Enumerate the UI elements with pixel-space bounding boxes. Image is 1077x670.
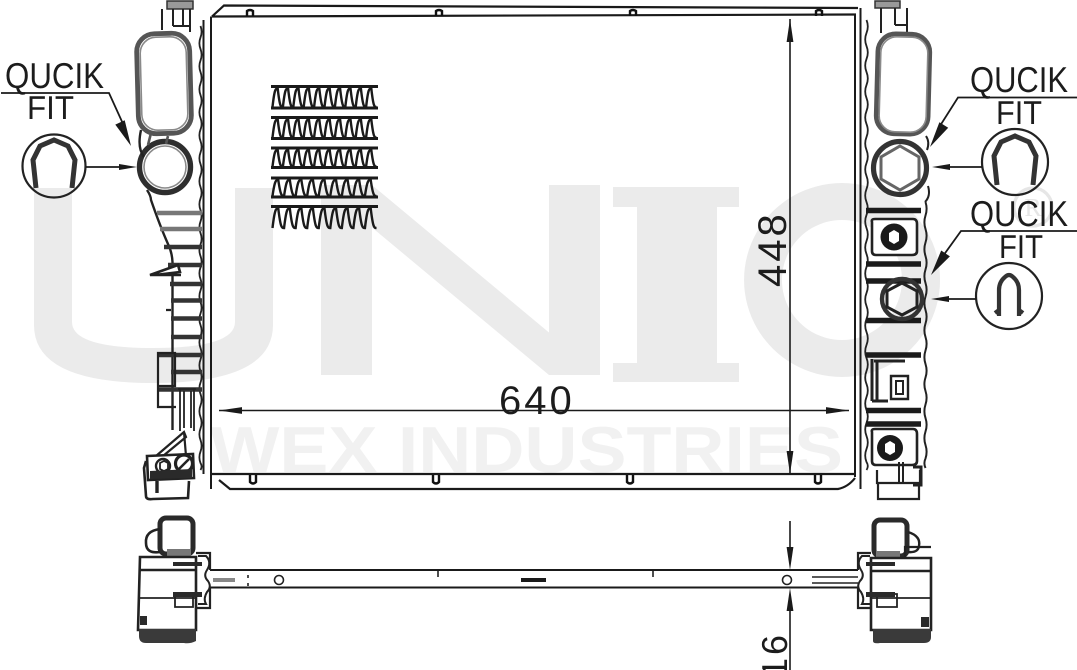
- svg-text:FIT: FIT: [996, 94, 1042, 131]
- svg-text:640: 640: [499, 379, 575, 423]
- svg-text:448: 448: [751, 211, 795, 287]
- svg-text:16: 16: [754, 632, 795, 670]
- svg-text:FIT: FIT: [999, 228, 1043, 265]
- svg-text:FIT: FIT: [27, 89, 74, 126]
